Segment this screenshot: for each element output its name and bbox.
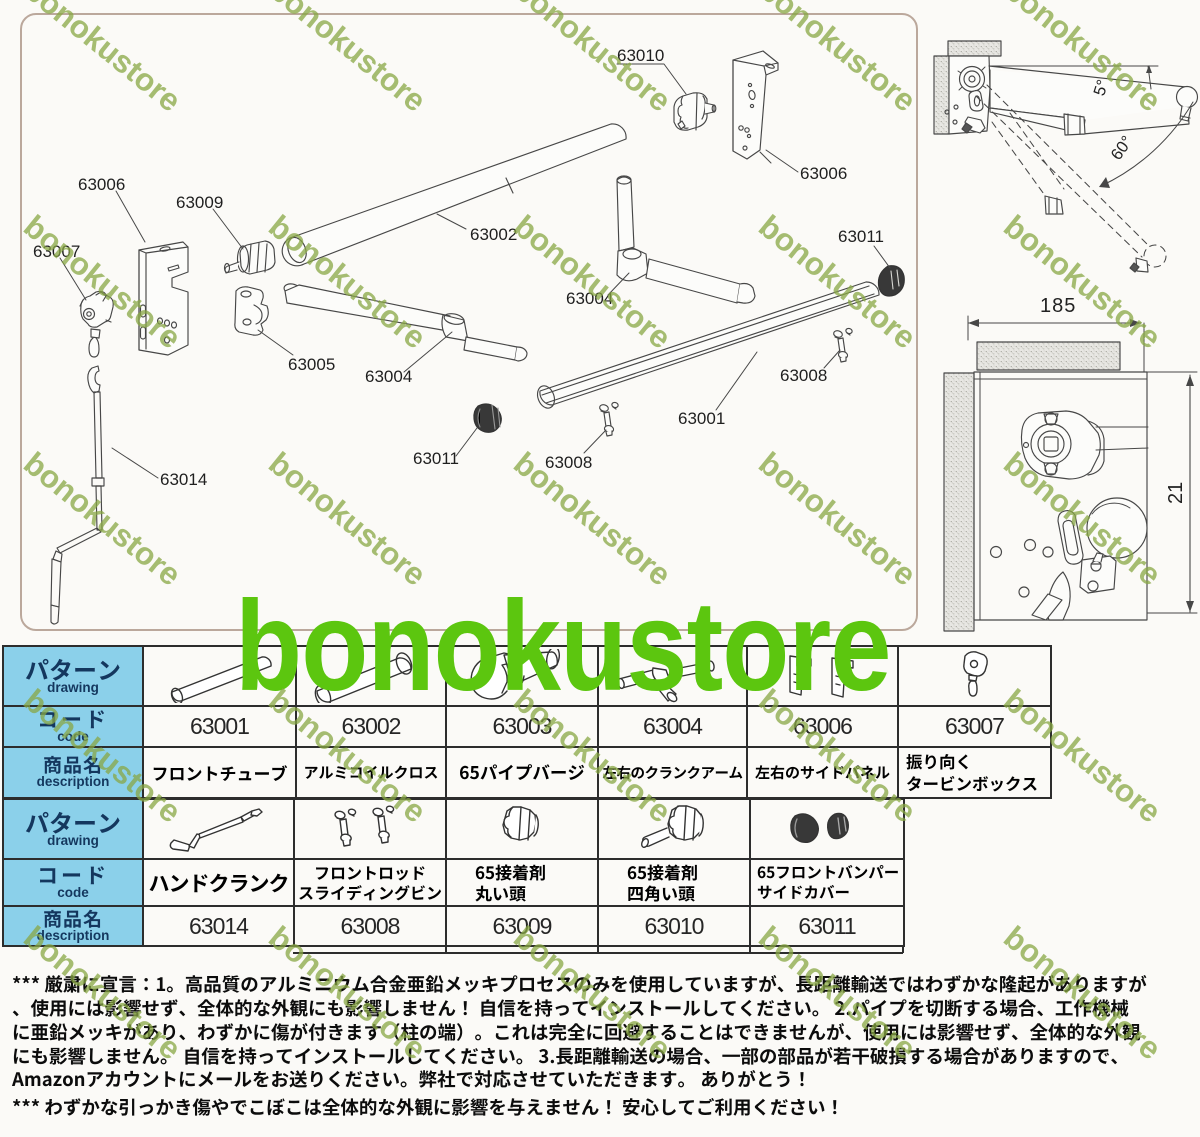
svg-text:63006: 63006 [78,175,125,194]
svg-text:21: 21 [1165,482,1187,504]
svg-text:63011: 63011 [838,227,884,246]
svg-text:63006: 63006 [800,164,847,183]
svg-text:185: 185 [1040,295,1076,317]
svg-text:63009: 63009 [176,193,223,212]
svg-text:63001: 63001 [678,409,725,428]
svg-text:60°: 60° [1108,133,1137,164]
svg-text:63004: 63004 [365,367,412,386]
svg-text:63005: 63005 [288,355,335,374]
svg-text:63014: 63014 [160,470,207,489]
svg-text:63008: 63008 [780,366,827,385]
svg-text:63011: 63011 [413,449,459,468]
